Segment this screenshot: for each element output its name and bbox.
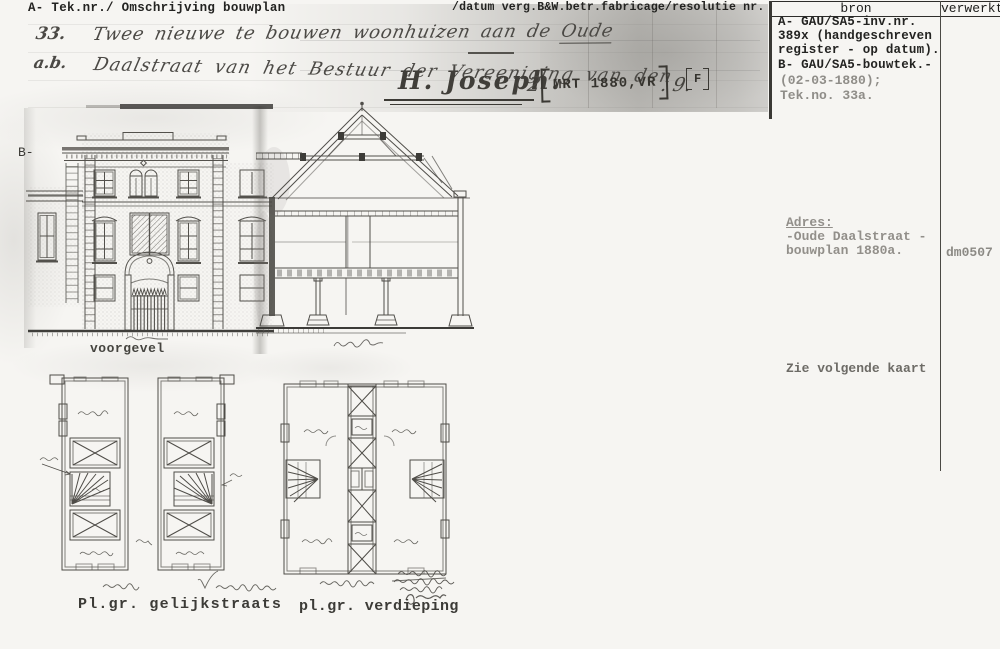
header-col-bron: bron bbox=[772, 1, 940, 16]
entry-number: 33. bbox=[34, 24, 67, 44]
bron-line: 389x (handgeschreven bbox=[778, 29, 940, 43]
adres-line: bouwplan 1880a. bbox=[786, 244, 926, 258]
table-top-border bbox=[770, 1, 1000, 2]
adres-title: Adres: bbox=[786, 216, 926, 230]
header-middle: /datum verg.B&W.betr.fabricage/resolutie… bbox=[452, 1, 764, 14]
ruled-line bbox=[28, 52, 768, 53]
flag-stamp: F bbox=[686, 68, 709, 90]
flag-bracket-left bbox=[686, 68, 692, 90]
entry-sub-number: a.b. bbox=[32, 53, 68, 72]
archive-card: A- Tek.nr./ Omschrijving bouwplan /datum… bbox=[0, 0, 1000, 649]
bron-line: register - op datum). bbox=[778, 43, 940, 57]
facade-label: voorgevel bbox=[90, 341, 165, 356]
stamp-bracket-left bbox=[541, 68, 551, 102]
bron-adres-block: Adres: -Oude Daalstraat - bouwplan 1880a… bbox=[786, 216, 926, 259]
table-divider-verwerkt bbox=[940, 1, 941, 471]
plan-upper-drawing bbox=[276, 372, 476, 614]
facade-drawing bbox=[26, 103, 276, 358]
bron-line: (02-03-1880); bbox=[780, 74, 881, 89]
verwerkt-code: dm0507 bbox=[946, 245, 993, 260]
bron-block2: (02-03-1880); Tek.no. 33a. bbox=[780, 74, 881, 103]
bron-line: A- GAU/SA5-inv.nr. bbox=[778, 15, 940, 29]
table-divider-bron-left bbox=[769, 1, 772, 119]
plan-ground-label: Pl.gr. gelijkstraats bbox=[78, 596, 282, 613]
header-col-verwerkt: verwerkt bbox=[941, 1, 1000, 16]
section-drawing bbox=[256, 101, 501, 359]
bron-line: B- GAU/SA5-bouwtek.- bbox=[778, 58, 940, 72]
adres-line: -Oude Daalstraat - bbox=[786, 230, 926, 244]
flag-bracket-right bbox=[703, 68, 709, 90]
bron-block1: A- GAU/SA5-inv.nr. 389x (handgeschreven … bbox=[778, 15, 940, 72]
flag-text: F bbox=[694, 72, 701, 86]
header-left: A- Tek.nr./ Omschrijving bouwplan bbox=[28, 1, 285, 15]
stamp-text: MRT 1880,VR bbox=[553, 75, 657, 94]
plan-ground-drawing bbox=[40, 368, 280, 612]
entry-line1: Twee nieuwe te bouwen woonhuizen aan de … bbox=[91, 20, 616, 45]
bron-line: Tek.no. 33a. bbox=[780, 89, 881, 104]
bron-note: Zie volgende kaart bbox=[786, 361, 926, 376]
scan-grid-line bbox=[716, 8, 717, 108]
date-stamp: MRT 1880,VR bbox=[541, 65, 669, 102]
entry-line1-text: Twee nieuwe te bouwen woonhuizen aan de bbox=[91, 21, 564, 45]
entry-line1-underlined: Oude bbox=[559, 20, 616, 43]
plan-upper-label: pl.gr. verdieping bbox=[299, 598, 459, 615]
